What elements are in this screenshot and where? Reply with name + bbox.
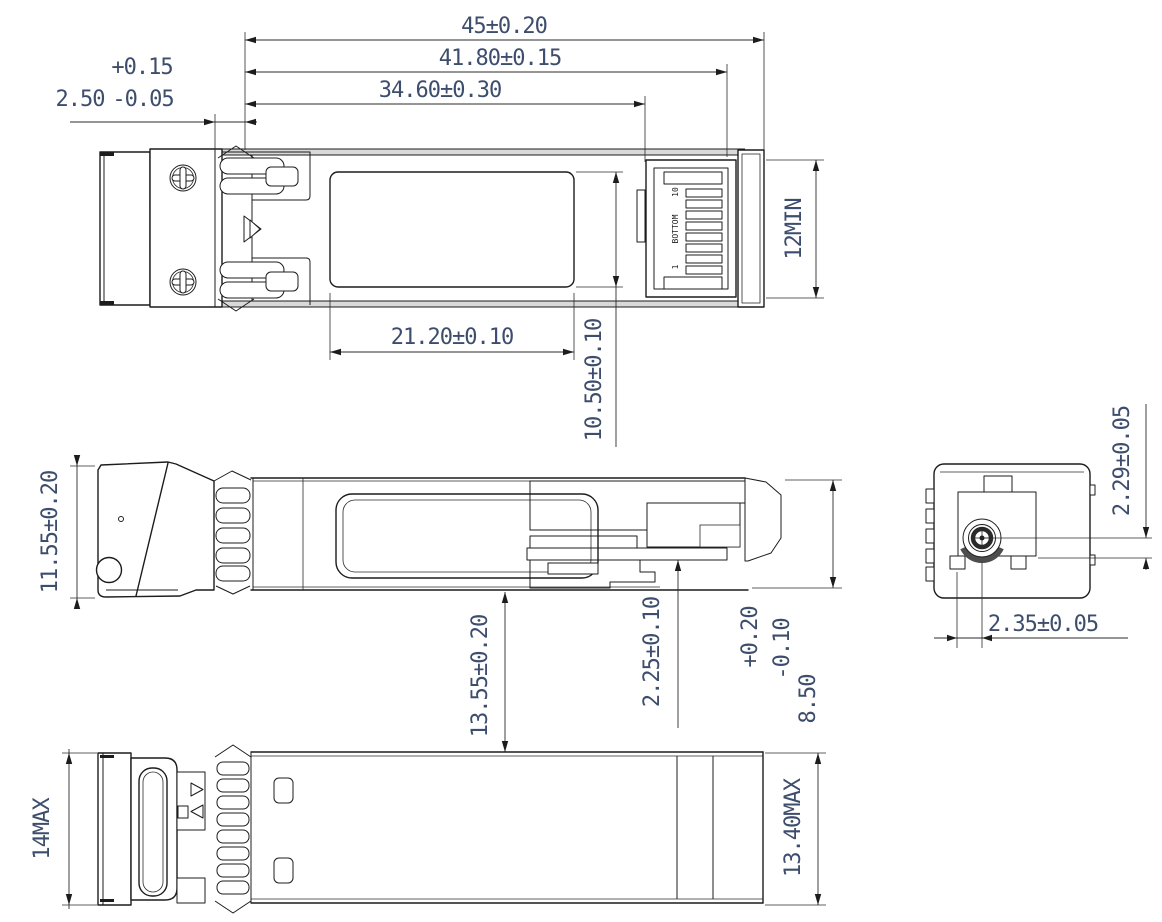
dim-port-depth: 12MIN [782, 198, 807, 259]
dim-latch-value: 2.50 [56, 87, 105, 112]
emi-fingers-bottom-view [215, 745, 251, 913]
emi-fingers-side [214, 471, 251, 594]
mounting-hole [274, 778, 293, 803]
view-bottom [98, 745, 763, 913]
dim-label-length: 21.20±0.10 [391, 325, 513, 350]
edge-connector: 10 BOTTOM 1 [637, 160, 736, 297]
dim-body-height-value: 8.50 [796, 675, 821, 724]
pin-10-label: 10 [671, 187, 680, 197]
connector-bottom-marking: BOTTOM [671, 214, 680, 243]
dim-pcb-offset: 2.25±0.10 [640, 597, 665, 707]
dim-body-height-tol-upper: +0.20 [738, 606, 763, 667]
dim-label-width: 10.50±0.10 [582, 319, 607, 441]
screw-icon [170, 269, 196, 295]
dim-latch-tol-upper: +0.15 [111, 55, 172, 80]
nose-cap-section [745, 478, 781, 561]
screw-icon [170, 165, 196, 191]
front-plate [100, 152, 150, 305]
connector-pad [664, 277, 722, 289]
dim-housing-length: 34.60±0.30 [379, 78, 501, 103]
pin-1-label: 1 [671, 264, 680, 269]
bail-latch [97, 462, 215, 597]
dim-body-height-tol-lower: -0.10 [770, 618, 795, 679]
view-top-plan: 10 BOTTOM 1 [100, 146, 764, 311]
connector-pad [664, 172, 722, 184]
dim-bore-horizontal: 2.35±0.05 [988, 612, 1098, 637]
dim-max-width: 13.40MAX [781, 777, 806, 877]
dim-bore-vertical: 2.29±0.05 [1110, 406, 1135, 516]
dim-max-height: 14MAX [30, 797, 55, 860]
engineering-drawing: 10 BOTTOM 1 45±0.20 41.80±0.15 34.60±0.3… [0, 0, 1162, 922]
view-end [926, 464, 1095, 598]
dim-overall-height: 13.55±0.20 [468, 615, 493, 737]
bail-hole [97, 558, 122, 583]
dim-body-length: 41.80±0.15 [439, 46, 561, 71]
drawing-sheet: 10 BOTTOM 1 45±0.20 41.80±0.15 34.60±0.3… [0, 0, 1162, 922]
dim-latch-tol-lower: -0.05 [112, 87, 173, 112]
dim-overall-length: 45±0.20 [461, 14, 547, 39]
mounting-hole [274, 858, 293, 883]
label-area [330, 172, 574, 287]
dim-bail-height: 11.55±0.20 [38, 471, 63, 593]
